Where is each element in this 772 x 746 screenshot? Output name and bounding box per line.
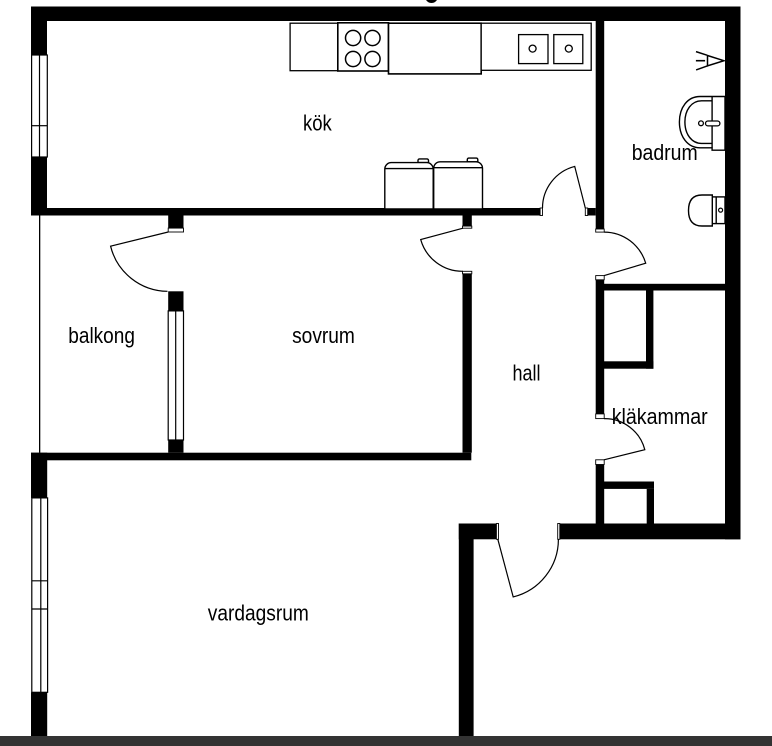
svg-text:hall: hall (513, 361, 541, 386)
svg-text:kläkammar: kläkammar (612, 404, 708, 429)
svg-text:balkong: balkong (68, 323, 135, 348)
svg-text:vardagsrum: vardagsrum (208, 600, 309, 625)
svg-text:sovrum: sovrum (292, 323, 355, 348)
svg-text:kök: kök (303, 111, 333, 136)
svg-text:badrum: badrum (632, 140, 698, 165)
